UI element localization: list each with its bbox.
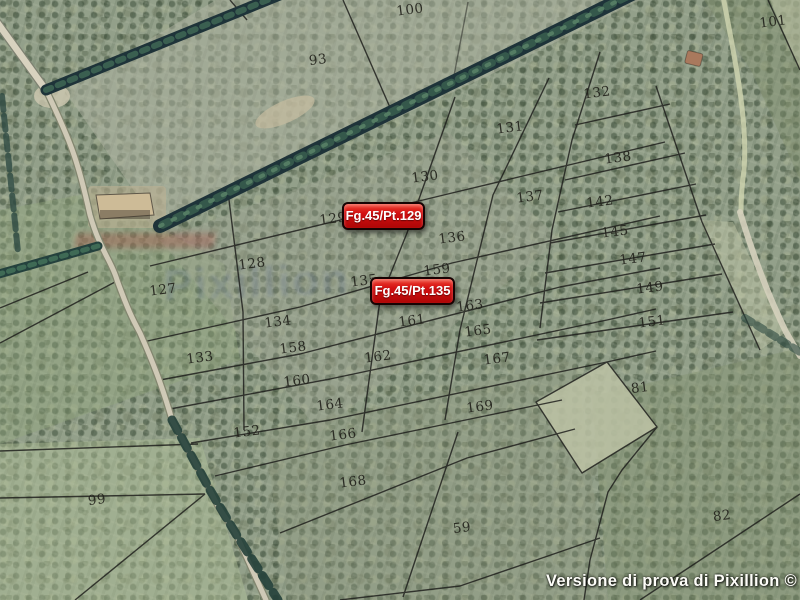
parcel-number-136: 136 <box>437 228 466 247</box>
parcel-annotation-layer: 9310010113213113013813714214514714915112… <box>0 0 800 600</box>
parcel-number-149: 149 <box>635 278 664 297</box>
parcel-number-166: 166 <box>328 425 357 444</box>
parcel-number-134: 134 <box>263 312 292 331</box>
parcel-number-162: 162 <box>363 347 392 366</box>
parcel-number-133: 133 <box>185 348 214 367</box>
parcel-number-142: 142 <box>585 192 614 211</box>
parcel-number-131: 131 <box>495 118 524 137</box>
parcel-number-59: 59 <box>452 519 472 537</box>
parcel-number-145: 145 <box>600 222 629 241</box>
parcel-number-163: 163 <box>455 296 484 315</box>
map-viewport[interactable]: Pixillion <box>0 0 800 600</box>
parcel-number-158: 158 <box>278 338 307 357</box>
parcel-number-127: 127 <box>148 280 177 299</box>
parcel-number-130: 130 <box>410 167 439 186</box>
parcel-number-99: 99 <box>87 491 107 509</box>
parcel-marker-129[interactable]: Fg.45/Pt.129 <box>342 202 425 230</box>
parcel-number-101: 101 <box>758 12 787 31</box>
parcel-number-82: 82 <box>712 507 732 525</box>
parcel-number-160: 160 <box>282 371 311 390</box>
parcel-number-147: 147 <box>618 249 647 268</box>
parcel-number-165: 165 <box>463 321 492 340</box>
parcel-number-132: 132 <box>582 83 611 102</box>
parcel-number-152: 152 <box>232 422 261 441</box>
parcel-number-167: 167 <box>482 349 511 368</box>
parcel-number-137: 137 <box>515 187 544 206</box>
parcel-number-138: 138 <box>603 148 632 167</box>
parcel-number-168: 168 <box>338 472 367 491</box>
trial-watermark: Versione di prova di Pixillion © <box>546 572 797 591</box>
parcel-number-151: 151 <box>637 312 666 331</box>
parcel-number-161: 161 <box>397 311 426 330</box>
parcel-number-169: 169 <box>465 397 494 416</box>
parcel-marker-135[interactable]: Fg.45/Pt.135 <box>370 277 455 305</box>
parcel-number-100: 100 <box>395 0 424 19</box>
parcel-number-164: 164 <box>315 395 344 414</box>
parcel-number-128: 128 <box>237 254 266 273</box>
parcel-number-81: 81 <box>630 379 650 397</box>
parcel-number-93: 93 <box>308 51 328 69</box>
